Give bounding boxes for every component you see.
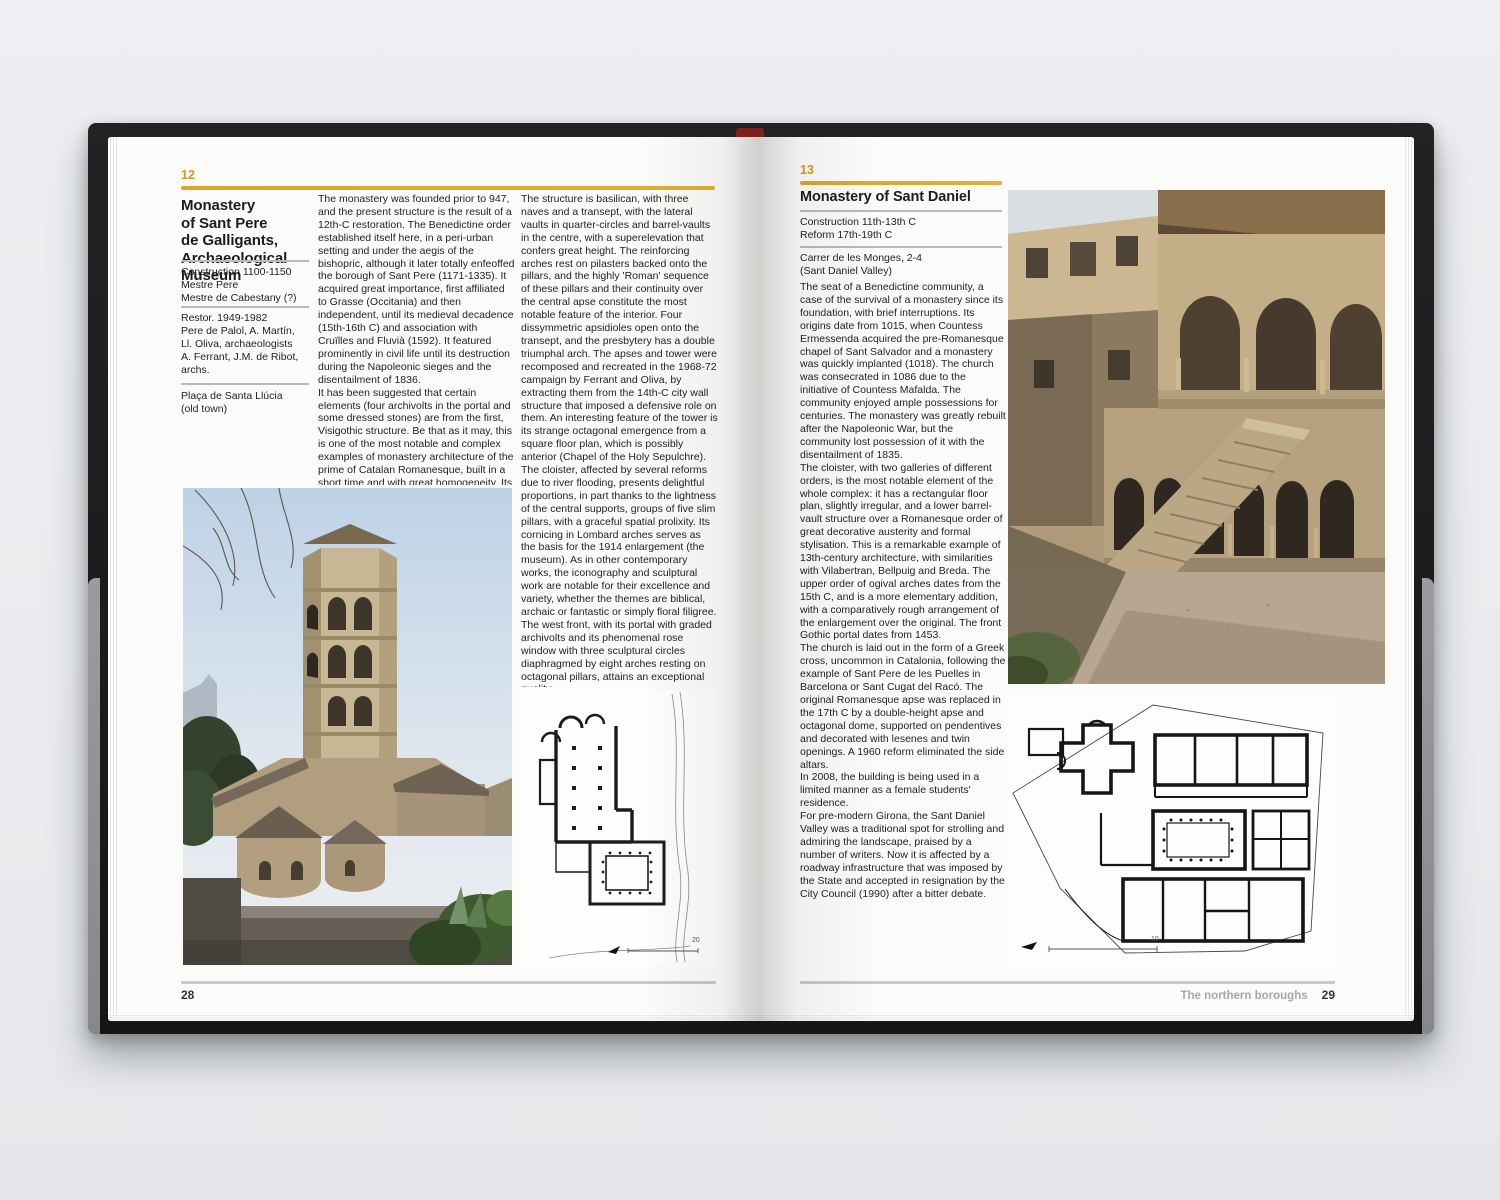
river-lines (550, 692, 690, 962)
sant-pere-church-photo (183, 488, 512, 965)
entry-title-right: Monastery of Sant Daniel (800, 189, 1010, 207)
paragraph: It has been suggested that certain eleme… (318, 387, 515, 485)
restoration-info-left: Restor. 1949-1982 Pere de Palol, A. Mart… (181, 312, 321, 377)
scale-bar: 20 (628, 937, 700, 953)
address-right: Carrer de les Monges, 2-4 (Sant Daniel V… (800, 252, 1005, 278)
plan-scale-label: 10 (1151, 936, 1159, 943)
cloister-plan (556, 842, 664, 904)
upper-left-building (1008, 216, 1158, 320)
north-wing (1155, 735, 1307, 797)
sant-daniel-cloister-photo (1008, 190, 1385, 684)
paragraph: For pre-modern Girona, the Sant Daniel V… (800, 810, 1006, 900)
gold-rule-right (800, 181, 1002, 185)
section-title: The northern boroughs (1181, 990, 1308, 1002)
paragraph: The west front, with its portal with gra… (521, 619, 718, 687)
gold-rule-left (181, 186, 715, 190)
upper-gallery (1158, 234, 1385, 399)
page-bottom-edge (108, 1014, 1414, 1021)
divider-rule (800, 246, 1002, 248)
divider-rule (181, 306, 309, 308)
paragraph: The cloister, with two galleries of diff… (800, 462, 1006, 643)
south-wing (1065, 813, 1303, 941)
cover-edge-strip-left (88, 578, 100, 1034)
cover-edge-strip-right (1422, 578, 1434, 1034)
paragraph: The monastery was founded prior to 947, … (318, 193, 515, 387)
book-spread-scene: 12 Monastery of Sant Pere de Galligants,… (0, 0, 1500, 1200)
divider-rule (181, 383, 309, 385)
north-arrow-icon (608, 946, 620, 954)
page-fore-edge-left (108, 137, 117, 1021)
page-fore-edge-right (1405, 137, 1414, 1021)
page-number-right: 29 (1322, 988, 1335, 1002)
page-number-left: 28 (181, 988, 194, 1002)
address-left: Plaça de Santa Llúcia (old town) (181, 390, 321, 416)
sant-pere-plan-drawing: 20 (520, 690, 717, 966)
cloister (1153, 811, 1245, 869)
north-arrow-icon (1021, 942, 1037, 950)
construction-info-right: Construction 11th-13th C Reform 17th-19t… (800, 216, 1005, 242)
footer-rule-right (800, 981, 1335, 984)
church-plan (540, 715, 632, 842)
left-column-3: The structure is basilican, with three n… (521, 193, 718, 687)
construction-info-left: Construction 1100-1150 Mestre Pere Mestr… (181, 266, 321, 305)
sant-daniel-plan-drawing: 10 (1005, 693, 1335, 965)
divider-rule (800, 210, 1002, 212)
paragraph: The structure is basilican, with three n… (521, 193, 718, 464)
plan-scale-label: 20 (692, 937, 700, 944)
sant-daniel-cloister-illustration (1008, 190, 1385, 684)
paragraph: The seat of a Benedictine community, a c… (800, 281, 1006, 462)
church-greek-cross (1029, 721, 1133, 793)
left-column-2: The monastery was founded prior to 947, … (318, 193, 515, 485)
footer-rule-left (181, 981, 716, 984)
footer-right: The northern boroughs29 (800, 988, 1335, 1002)
divider-rule (181, 260, 309, 262)
scale-bar: 10 (1049, 936, 1159, 952)
entry-number-left: 12 (181, 168, 195, 182)
sant-daniel-floor-plan: 10 (1005, 693, 1335, 965)
paragraph: In 2008, the building is being used in a… (800, 771, 1006, 810)
sant-pere-church-illustration (183, 488, 512, 965)
east-rooms (1253, 811, 1309, 869)
paragraph: The cloister, affected by several reform… (521, 464, 718, 619)
right-body-column: The seat of a Benedictine community, a c… (800, 281, 1006, 901)
paragraph: The church is laid out in the form of a … (800, 642, 1006, 771)
bell-tower (303, 524, 397, 786)
entry-number-right: 13 (800, 163, 814, 177)
sant-pere-floor-plan: 20 (520, 690, 717, 966)
